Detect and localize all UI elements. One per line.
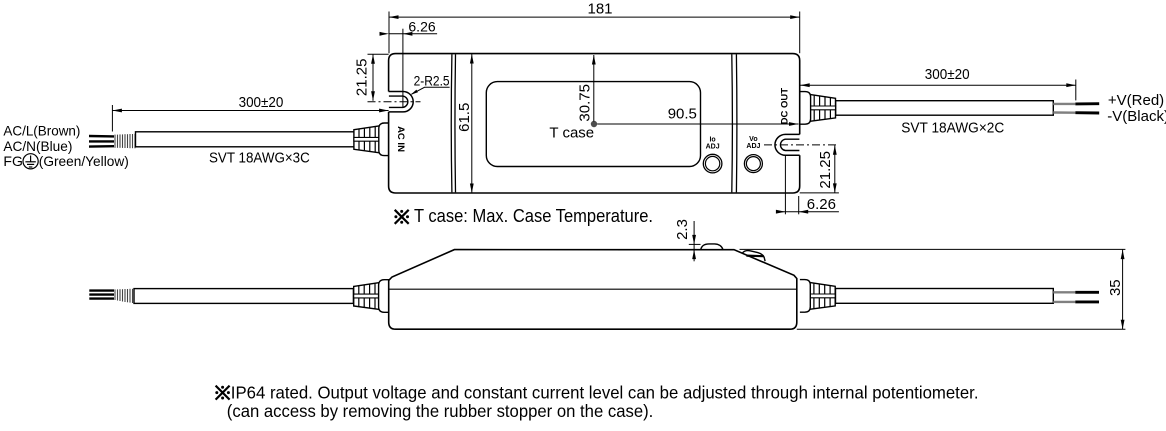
svg-text:181: 181 <box>587 0 612 17</box>
svg-text:IP64 rated. Output voltage and: IP64 rated. Output voltage and constant … <box>231 382 979 402</box>
svg-text:30.75: 30.75 <box>577 84 594 122</box>
svg-text:2-R2.5: 2-R2.5 <box>414 72 450 88</box>
svg-text:AC/N(Blue): AC/N(Blue) <box>3 138 72 154</box>
svg-text:SVT 18AWG×3C: SVT 18AWG×3C <box>209 150 310 167</box>
svg-text:SVT 18AWG×2C: SVT 18AWG×2C <box>901 119 1004 136</box>
svg-text:-V(Black): -V(Black) <box>1107 108 1166 125</box>
svg-text:6.26: 6.26 <box>408 19 435 35</box>
svg-text:300±20: 300±20 <box>239 94 284 111</box>
svg-text:35: 35 <box>1107 279 1124 296</box>
svg-text:AC IN: AC IN <box>395 126 406 152</box>
svg-text:+V(Red): +V(Red) <box>1108 92 1164 109</box>
svg-text:21.25: 21.25 <box>354 59 371 97</box>
svg-text:T case: T case <box>549 125 594 142</box>
svg-text:Io: Io <box>709 136 715 143</box>
svg-text:300±20: 300±20 <box>925 66 970 83</box>
svg-text:6.26: 6.26 <box>807 196 836 213</box>
svg-text:(can access by removing the ru: (can access by removing the rubber stopp… <box>227 401 654 421</box>
svg-text:2.3: 2.3 <box>674 219 691 240</box>
svg-text:90.5: 90.5 <box>668 106 697 123</box>
svg-text:T case: Max. Case Temperature.: T case: Max. Case Temperature. <box>414 206 653 226</box>
svg-text:DC OUT: DC OUT <box>779 88 790 125</box>
svg-text:AC/L(Brown): AC/L(Brown) <box>3 122 80 138</box>
svg-text:FG: FG <box>3 153 22 169</box>
svg-text:(Green/Yellow): (Green/Yellow) <box>39 153 129 169</box>
svg-text:ADJ: ADJ <box>706 144 720 151</box>
svg-text:21.25: 21.25 <box>817 151 834 189</box>
svg-text:ADJ: ADJ <box>746 143 760 150</box>
svg-text:61.5: 61.5 <box>456 103 473 132</box>
svg-text:Vo: Vo <box>749 136 757 143</box>
